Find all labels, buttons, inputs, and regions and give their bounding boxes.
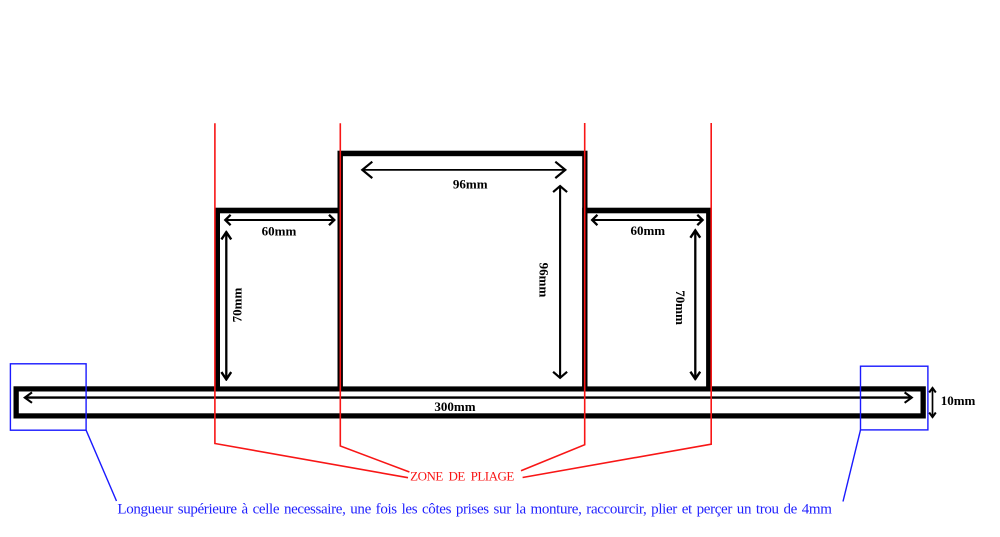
svg-text:60mm: 60mm	[630, 223, 665, 238]
svg-text:10mm: 10mm	[941, 393, 976, 408]
svg-text:300mm: 300mm	[434, 399, 475, 414]
svg-text:Longueur supérieure à celle ne: Longueur supérieure à celle necessaire, …	[117, 502, 832, 518]
svg-text:96mm: 96mm	[536, 263, 551, 298]
svg-text:70mm: 70mm	[673, 290, 688, 325]
svg-text:ZONE DE PLIAGE: ZONE DE PLIAGE	[410, 469, 514, 484]
svg-text:96mm: 96mm	[453, 177, 488, 192]
svg-text:70mm: 70mm	[230, 288, 245, 323]
svg-text:60mm: 60mm	[262, 224, 297, 239]
